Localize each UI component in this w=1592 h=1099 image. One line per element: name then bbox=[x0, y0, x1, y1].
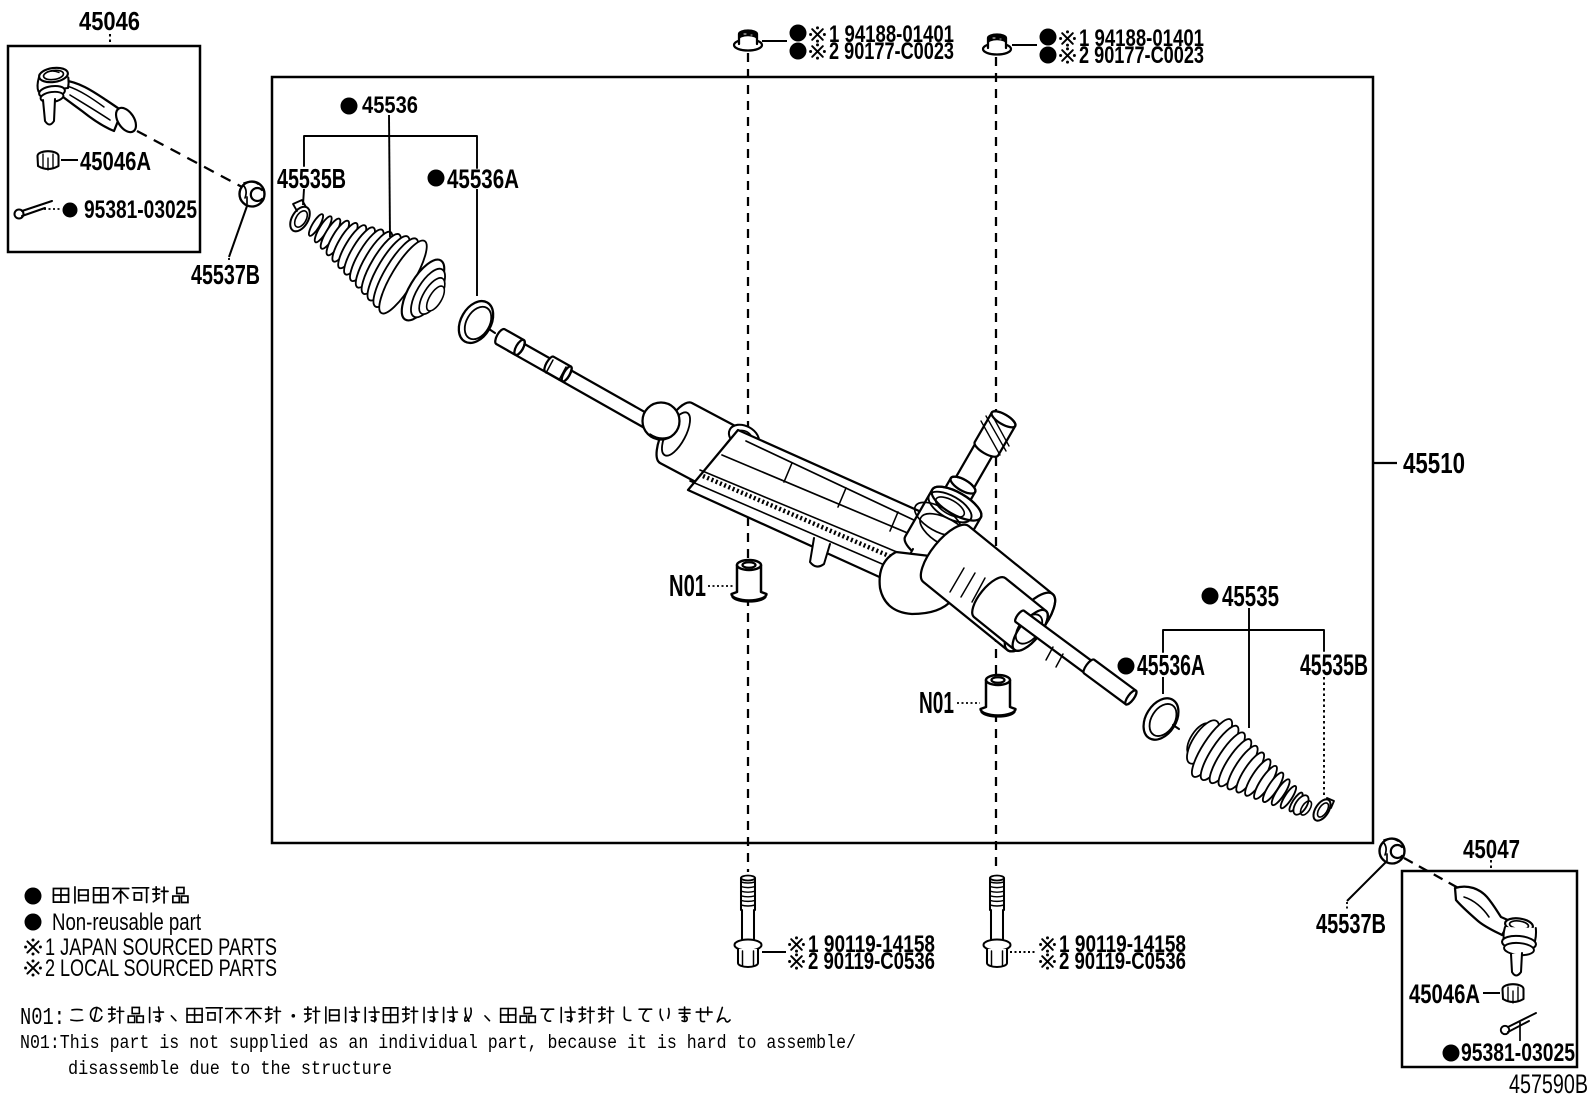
svg-text:45536A: 45536A bbox=[447, 164, 519, 194]
svg-text:N01:: N01: bbox=[20, 1005, 65, 1032]
svg-text:2 LOCAL SOURCED PARTS: 2 LOCAL SOURCED PARTS bbox=[45, 955, 277, 982]
svg-text:45046: 45046 bbox=[79, 6, 140, 36]
svg-text:N01:This part is not supplied: N01:This part is not supplied as an indi… bbox=[20, 1032, 856, 1054]
svg-text:Non-reusable part: Non-reusable part bbox=[52, 909, 201, 936]
svg-text:45537B: 45537B bbox=[1316, 908, 1386, 939]
svg-text:2 90177-C0023: 2 90177-C0023 bbox=[829, 38, 954, 65]
svg-text:45047: 45047 bbox=[1463, 834, 1520, 864]
svg-text:95381-03025: 95381-03025 bbox=[1461, 1039, 1575, 1067]
svg-text:45510: 45510 bbox=[1403, 448, 1465, 480]
svg-text:2 90119-C0536: 2 90119-C0536 bbox=[808, 948, 935, 975]
svg-text:45537B: 45537B bbox=[191, 259, 260, 290]
svg-text:45046A: 45046A bbox=[80, 146, 151, 176]
svg-text:45535: 45535 bbox=[1222, 581, 1279, 613]
svg-text:2 90177-C0023: 2 90177-C0023 bbox=[1079, 42, 1204, 69]
svg-text:45535B: 45535B bbox=[277, 163, 346, 194]
svg-text:457590B: 457590B bbox=[1509, 1069, 1588, 1099]
svg-text:N01: N01 bbox=[919, 685, 954, 720]
svg-text:45536: 45536 bbox=[362, 92, 418, 119]
svg-text:2 90119-C0536: 2 90119-C0536 bbox=[1059, 948, 1186, 975]
svg-text:45536A: 45536A bbox=[1137, 650, 1205, 682]
svg-text:disassemble due to the structu: disassemble due to the structure bbox=[68, 1058, 392, 1080]
svg-text:N01: N01 bbox=[669, 568, 706, 603]
svg-text:95381-03025: 95381-03025 bbox=[84, 196, 197, 224]
svg-text:45046A: 45046A bbox=[1409, 979, 1480, 1009]
svg-text:45535B: 45535B bbox=[1300, 649, 1368, 682]
